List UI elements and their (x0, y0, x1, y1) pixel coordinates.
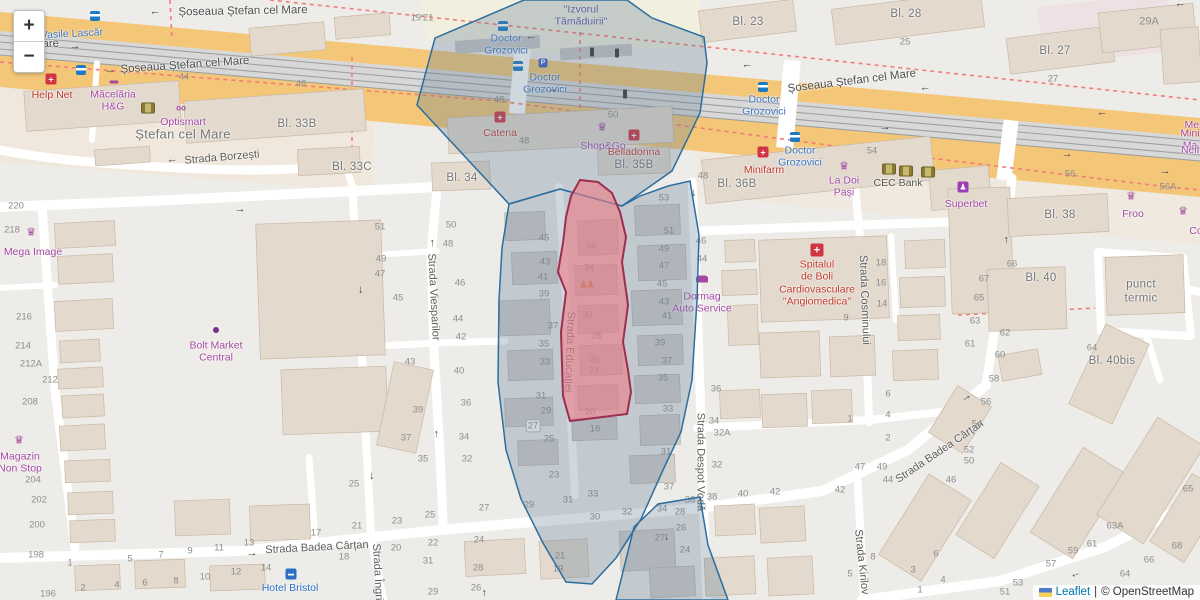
house-number: 54 (867, 145, 878, 156)
house-number: 2 (885, 432, 890, 443)
map-label: Magazin Non Stop (0, 451, 42, 476)
house-number: 63A (1107, 520, 1124, 531)
map-label: Bl. 40bis (1089, 355, 1136, 369)
map-label: Bl. 23 (732, 16, 763, 30)
map-label: Doctor Grozovici (742, 94, 786, 119)
atm-icon (899, 166, 913, 177)
house-number: 212 (42, 374, 58, 385)
house-number: 34 (709, 415, 720, 426)
house-number: 37 (401, 432, 412, 443)
house-number: 24 (474, 534, 485, 545)
house-number: 46 (455, 277, 466, 288)
oneway-arrow-icon: → (920, 84, 931, 96)
house-number: 44 (179, 71, 190, 82)
house-number: 18 (339, 551, 350, 562)
oneway-arrow-icon: → (429, 429, 441, 440)
ukraine-flag-icon (1039, 588, 1052, 597)
house-number: 4 (940, 574, 945, 585)
map-label: Șoseaua Ștefan cel Mare (178, 4, 307, 20)
house-number: 59 (1068, 545, 1079, 556)
house-number: 50 (446, 219, 457, 230)
map-label: Co (1189, 225, 1200, 237)
house-number: 29A (1139, 16, 1159, 29)
house-number: 44 (883, 474, 894, 485)
house-number: 6 (933, 548, 938, 559)
house-number: 40 (738, 488, 749, 499)
oneway-arrow-icon: → (70, 40, 81, 52)
house-number: 53 (1013, 577, 1024, 588)
attribution-separator: | (1094, 586, 1097, 598)
house-number: 57 (1046, 558, 1057, 569)
house-number: 208 (22, 396, 38, 407)
bus-stop-icon (76, 65, 86, 75)
overlay-layer (0, 0, 1200, 600)
house-number: 9 (187, 545, 192, 556)
house-number: 45 (393, 292, 404, 303)
bus-stop-icon (790, 132, 800, 142)
house-number: 37 (664, 481, 675, 492)
house-number: 16 (876, 277, 887, 288)
map-label: Froo (1122, 208, 1144, 220)
map-label: Strada Borzești (184, 148, 260, 167)
house-number: 56A (1160, 181, 1177, 192)
map-label: Strada Cosminului (856, 255, 872, 345)
house-number: 64 (1087, 342, 1098, 353)
map-label: Spitalul de Boli Cardiovasculare "Angiom… (779, 258, 855, 308)
map-label: Help Net (32, 89, 73, 101)
house-number: 65 (1183, 483, 1194, 494)
house-number: 40 (454, 365, 465, 376)
house-number: 10 (200, 571, 211, 582)
house-number: 38 (707, 491, 718, 502)
highlighted-area-polygon[interactable] (558, 180, 631, 421)
house-number: 20 (391, 542, 402, 553)
oneway-arrow-icon: → (1160, 165, 1171, 177)
pharmacy-icon: + (46, 74, 57, 85)
map-label: Bl. 36B (717, 178, 756, 192)
house-number: 56 (1065, 168, 1076, 179)
zoom-out-button[interactable]: − (14, 41, 44, 72)
oneway-arrow-icon: → (425, 238, 437, 249)
house-number: 64 (1120, 568, 1131, 579)
map-label: Strada Badea Cârțan (265, 539, 369, 557)
house-number: 34 (459, 431, 470, 442)
map-label: Șoseaua Ștefan cel Mare (120, 55, 250, 78)
house-number: 196 (40, 588, 56, 599)
map-label: Bolt Market Central (189, 340, 242, 365)
house-number: 50 (964, 455, 975, 466)
map-label: Minifarm (744, 164, 784, 176)
atm-icon (141, 103, 155, 114)
house-number: 54 (972, 418, 983, 429)
house-number: 4 (885, 409, 890, 420)
oneway-arrow-icon: → (167, 156, 178, 168)
house-number: 3 (910, 564, 915, 575)
oneway-arrow-icon: → (1175, 0, 1186, 12)
house-number: 18 (876, 257, 887, 268)
map-label: Hotel Bristol (262, 582, 319, 594)
map-label: Strada Îngri (369, 543, 385, 600)
map-label: Șoseaua Ștefan cel Mare (787, 67, 917, 96)
house-number: 32A (714, 427, 731, 438)
house-number: 220 (8, 200, 24, 211)
house-number: 2 (80, 582, 85, 593)
house-number: 60 (995, 349, 1006, 360)
house-number: 17 (311, 527, 322, 538)
house-number: 6 (885, 388, 890, 399)
bus-stop-icon (90, 11, 100, 21)
map-label: Optismart (160, 116, 206, 128)
house-number: 62 (1000, 327, 1011, 338)
map-label: Strada Viesparilor (424, 253, 442, 341)
house-number: 13 (244, 537, 255, 548)
map-label: Mini Ma (1180, 128, 1199, 153)
supermarket-icon: ♛ (1178, 205, 1188, 218)
bus-stop-icon (758, 82, 768, 92)
house-number: 26 (471, 582, 482, 593)
map-label: Bl. 33C (332, 161, 372, 175)
house-number: 52 (964, 444, 975, 455)
zoom-control: + − (13, 10, 45, 73)
house-number: 48 (698, 170, 709, 181)
map-label: Bl. 27 (1039, 45, 1070, 59)
house-number: 42 (835, 484, 846, 495)
house-number: 9 (843, 312, 848, 323)
house-number: 58 (989, 373, 1000, 384)
map-label: Bl. 40 (1025, 272, 1056, 286)
house-number: 44 (453, 313, 464, 324)
house-number: 63 (970, 315, 981, 326)
hotel-icon: ▬ (286, 569, 297, 580)
hospital-icon: + (811, 244, 824, 257)
map-label: Mel (1185, 119, 1200, 131)
house-number: 47 (855, 461, 866, 472)
house-number: 8 (870, 551, 875, 562)
oneway-arrow-icon: → (477, 588, 489, 599)
atm-icon (921, 167, 935, 178)
house-number: 35 (418, 453, 429, 464)
house-number: 42 (770, 486, 781, 497)
house-number: 47 (375, 268, 386, 279)
house-number: 32 (462, 453, 473, 464)
oneway-arrow-icon: → (1069, 568, 1083, 583)
house-number: 204 (25, 474, 41, 485)
map-label: Vasile Lascăr (41, 26, 104, 42)
zoom-in-button[interactable]: + (14, 11, 44, 41)
map-label: Bl. 34 (446, 172, 477, 186)
house-number: 32 (712, 459, 723, 470)
oneway-arrow-icon: → (880, 121, 891, 133)
house-number: 39 (413, 404, 424, 415)
house-number: 28 (473, 562, 484, 573)
house-number: 5 (847, 568, 852, 579)
house-number: 42 (456, 331, 467, 342)
house-number: 49 (376, 253, 387, 264)
house-number: 29 (428, 586, 439, 597)
house-number: 21 (352, 520, 363, 531)
map-label: Strada Badea Cârțan (894, 418, 987, 487)
supermarket-icon: ♛ (14, 434, 24, 447)
map-label: Măcelăria H&G (90, 89, 136, 114)
map-label: punct termic (1124, 278, 1157, 305)
house-number: 61 (1087, 538, 1098, 549)
house-number: 214 (15, 340, 31, 351)
house-number: 19'21 (411, 12, 434, 23)
leaflet-link[interactable]: Leaflet (1056, 586, 1091, 598)
oneway-arrow-icon: → (958, 389, 974, 405)
openstreetmap-link[interactable]: © OpenStreetMap (1101, 586, 1194, 598)
oneway-arrow-icon: → (235, 203, 246, 215)
house-number: 25 (900, 36, 911, 47)
house-number: 212A (20, 358, 42, 369)
map-label: Neil (1181, 144, 1199, 156)
map-label: Mega Image (4, 246, 62, 258)
butcher-icon (110, 81, 119, 84)
house-number: 66 (1144, 554, 1155, 565)
house-number: 65 (974, 292, 985, 303)
house-number: 12 (231, 566, 242, 577)
marker-dot-icon (213, 327, 219, 333)
house-number: 14 (261, 562, 272, 573)
oneway-arrow-icon: → (1062, 148, 1073, 160)
house-number: 25 (349, 478, 360, 489)
map-label: Bl. 38 (1044, 209, 1075, 223)
house-number: 51 (1000, 586, 1011, 597)
house-number: 25 (425, 509, 436, 520)
house-number: 11 (214, 542, 224, 553)
house-number: 202 (31, 494, 47, 505)
oneway-arrow-icon: → (1097, 109, 1108, 121)
house-number: 198 (28, 549, 44, 560)
atm-icon (882, 164, 896, 175)
oneway-arrow-icon: → (150, 8, 161, 20)
house-number: 36 (461, 397, 472, 408)
oneway-arrow-icon: → (742, 61, 753, 73)
house-number: 61 (965, 338, 976, 349)
house-number: 66 (1007, 258, 1018, 269)
map-label: Bl. 28 (890, 8, 921, 22)
map-label: Bl. 33B (277, 118, 316, 132)
house-number: 27 (479, 502, 490, 513)
house-number: 1 (847, 413, 852, 424)
betting-icon: ♟ (958, 182, 969, 193)
map-label: Superbet (945, 198, 988, 210)
house-number: 49 (877, 461, 888, 472)
house-number: 23 (392, 515, 403, 526)
pharmacy-icon: + (758, 147, 769, 158)
house-number: 14 (877, 298, 888, 309)
house-number: 51 (375, 221, 386, 232)
house-number: 22 (428, 537, 439, 548)
oneway-arrow-icon: → (356, 285, 368, 296)
glasses-icon: oo (176, 104, 186, 113)
house-number: 68 (1172, 540, 1183, 551)
map-label: Strada Kirilov (851, 529, 871, 595)
house-number: 216 (16, 311, 32, 322)
house-number: 36 (711, 383, 722, 394)
supermarket-icon: ♛ (1126, 190, 1136, 203)
house-number: 27 (1048, 73, 1059, 84)
house-number: 8 (173, 575, 178, 586)
supermarket-icon: ♛ (839, 160, 849, 173)
house-number: 43 (405, 356, 416, 367)
map-label: CEC Bank (873, 177, 922, 189)
house-number: 6 (142, 577, 147, 588)
house-number: 7 (158, 549, 163, 560)
cart-icon: ♛ (26, 226, 36, 239)
house-number: 67 (979, 273, 990, 284)
map-label: Doctor Grozovici (778, 145, 822, 170)
house-number: 56 (981, 396, 992, 407)
overlay-polygon-north[interactable] (417, 0, 707, 206)
map-label: La Doi Pași (829, 175, 859, 200)
house-number: 4 (114, 579, 119, 590)
oneway-arrow-icon: → (105, 64, 116, 76)
house-number: 31 (423, 555, 434, 566)
house-number: 200 (29, 519, 45, 530)
house-number: 5 (127, 553, 132, 564)
oneway-arrow-icon: → (247, 547, 258, 559)
house-number: 1 (917, 584, 922, 595)
attribution-bar: Leaflet | © OpenStreetMap (1033, 585, 1200, 600)
map-label: Ștefan cel Mare (135, 126, 231, 141)
oneway-arrow-icon: → (999, 235, 1011, 246)
house-number: 218 (4, 224, 20, 235)
house-number: 48 (443, 238, 454, 249)
house-number: 46 (296, 78, 307, 89)
house-number: 1 (67, 557, 72, 568)
map[interactable]: Șoseaua Ștefan cel MareȘoseaua Ștefan ce… (0, 0, 1200, 600)
oneway-arrow-icon: → (367, 471, 379, 482)
house-number: 46 (946, 474, 957, 485)
